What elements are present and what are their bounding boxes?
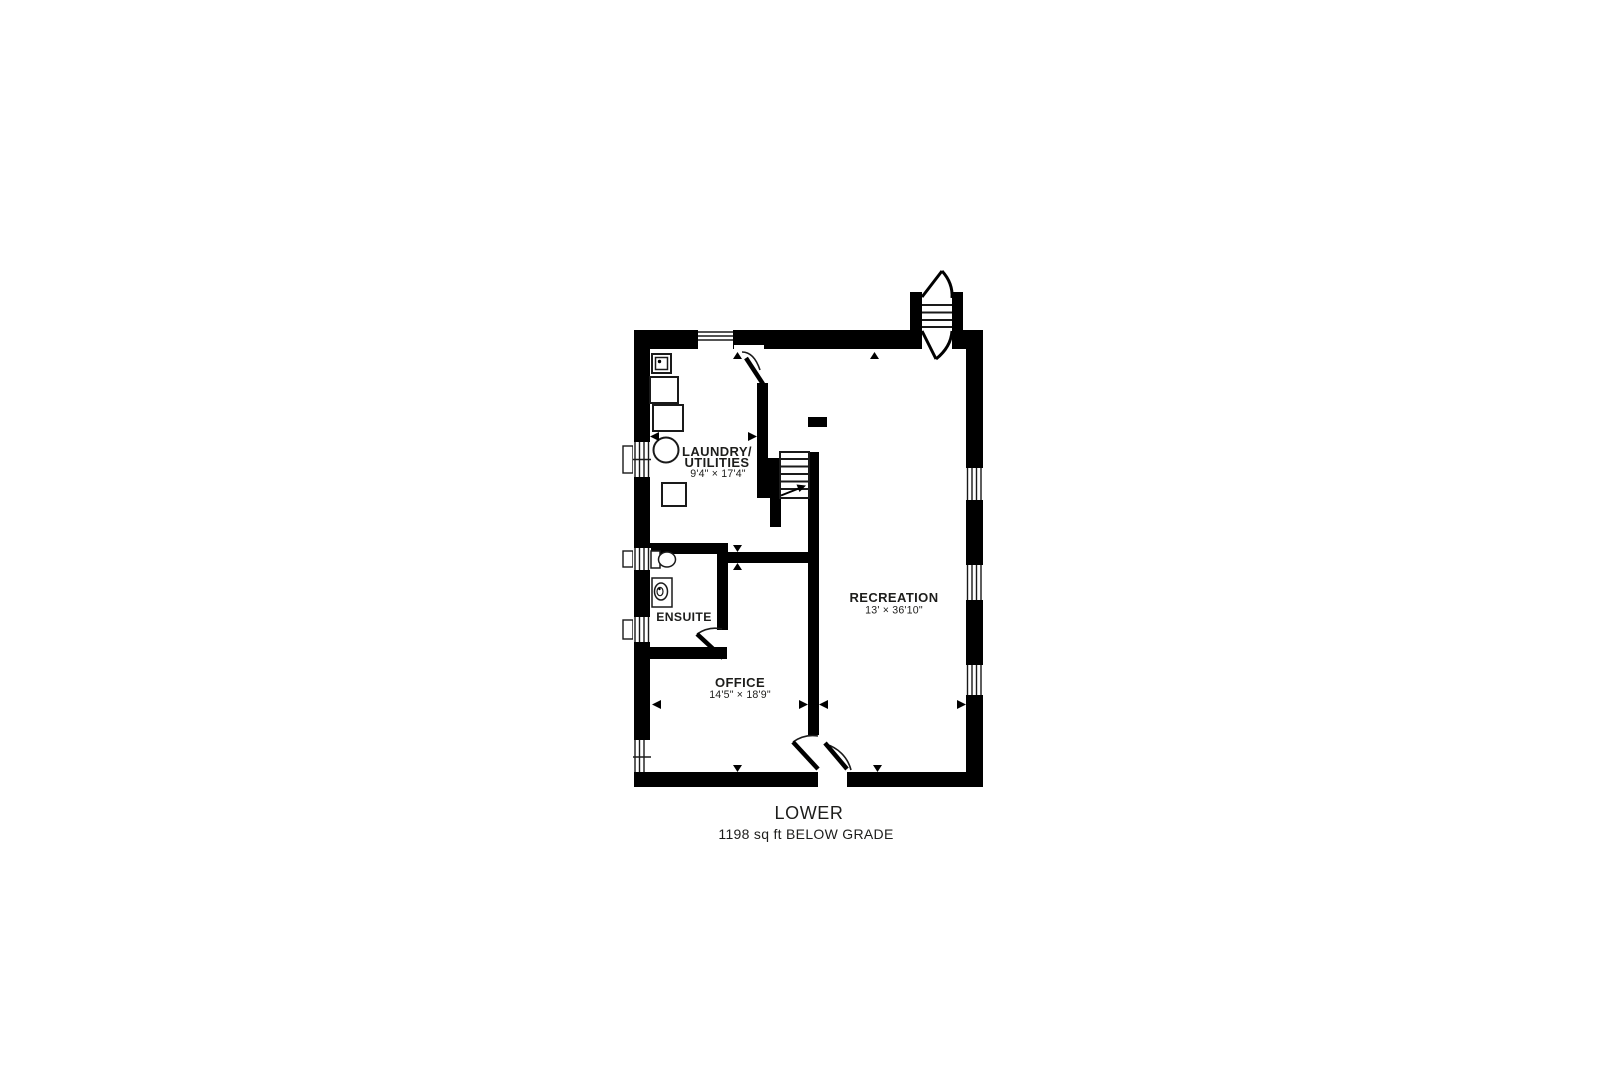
window-icon [964,468,984,500]
toilet-icon [651,551,676,568]
dimension-marker [733,765,742,772]
left-wall [634,570,650,617]
recreation-room-dims: 13' × 36'10" [865,605,923,617]
dimension-marker [733,545,742,552]
ensuite-room-label: ENSUITE [656,610,712,624]
stair-lower-wall [770,498,781,527]
dimension-marker [870,352,879,359]
rec-room-column [808,417,827,427]
dimension-marker [819,700,828,709]
office-top-wall [727,552,808,563]
left-wall [634,330,650,442]
level-title: LOWER [774,803,843,823]
right-wall [966,600,983,665]
window-icon [623,548,651,570]
furnace-icon [662,483,686,506]
window-icon [623,442,651,477]
exterior-stairwell-icon [910,271,963,359]
laundry-fixtures [650,354,686,506]
recreation-door-swing [825,743,851,770]
lower-level-floorplan: LAUNDRY/ UTILITIES 9'4" × 17'4" ENSUITE … [0,0,1620,1080]
dimension-marker [748,432,757,441]
office-room-label: OFFICE [715,675,765,690]
water-heater-icon [654,438,679,463]
vanity-sink-icon [652,578,672,607]
ensuite-fixtures [651,551,676,607]
laundry-door-swing [742,352,763,384]
plan-footer: LOWER 1198 sq ft BELOW GRADE [718,803,893,842]
dimension-marker [873,765,882,772]
right-wall [966,330,983,468]
dimension-marker [957,700,966,709]
window-icon [623,617,651,642]
laundry-hall-wall [757,383,768,460]
dryer-icon [653,405,683,431]
ensuite-right-wall [717,543,728,630]
dimension-marker [733,563,742,570]
dimension-marker [799,700,808,709]
right-wall [966,500,983,565]
area-note: 1198 sq ft BELOW GRADE [718,826,893,842]
left-wall [634,642,650,740]
top-door-opening [734,345,764,350]
window-icon [964,665,984,695]
stair-landing-wall [757,458,780,498]
office-door-swing [793,736,818,769]
dimension-marker [733,352,742,359]
recreation-room-label: RECREATION [850,590,939,605]
dimension-marker [650,432,659,441]
laundry-room-dims: 9'4" × 17'4" [690,468,746,480]
laundry-tub-icon [652,354,671,373]
interior-stairs-icon [780,452,809,498]
window-icon [964,565,984,600]
left-wall [634,477,650,548]
office-room-dims: 14'5" × 18'9" [709,689,771,701]
window-icon [633,740,651,772]
dimension-marker [652,700,661,709]
window-icon [698,330,733,349]
floorplan-canvas: LAUNDRY/ UTILITIES 9'4" × 17'4" ENSUITE … [0,0,1620,1080]
bottom-wall [634,772,818,787]
bottom-wall [847,772,983,787]
washer-icon [650,377,678,403]
